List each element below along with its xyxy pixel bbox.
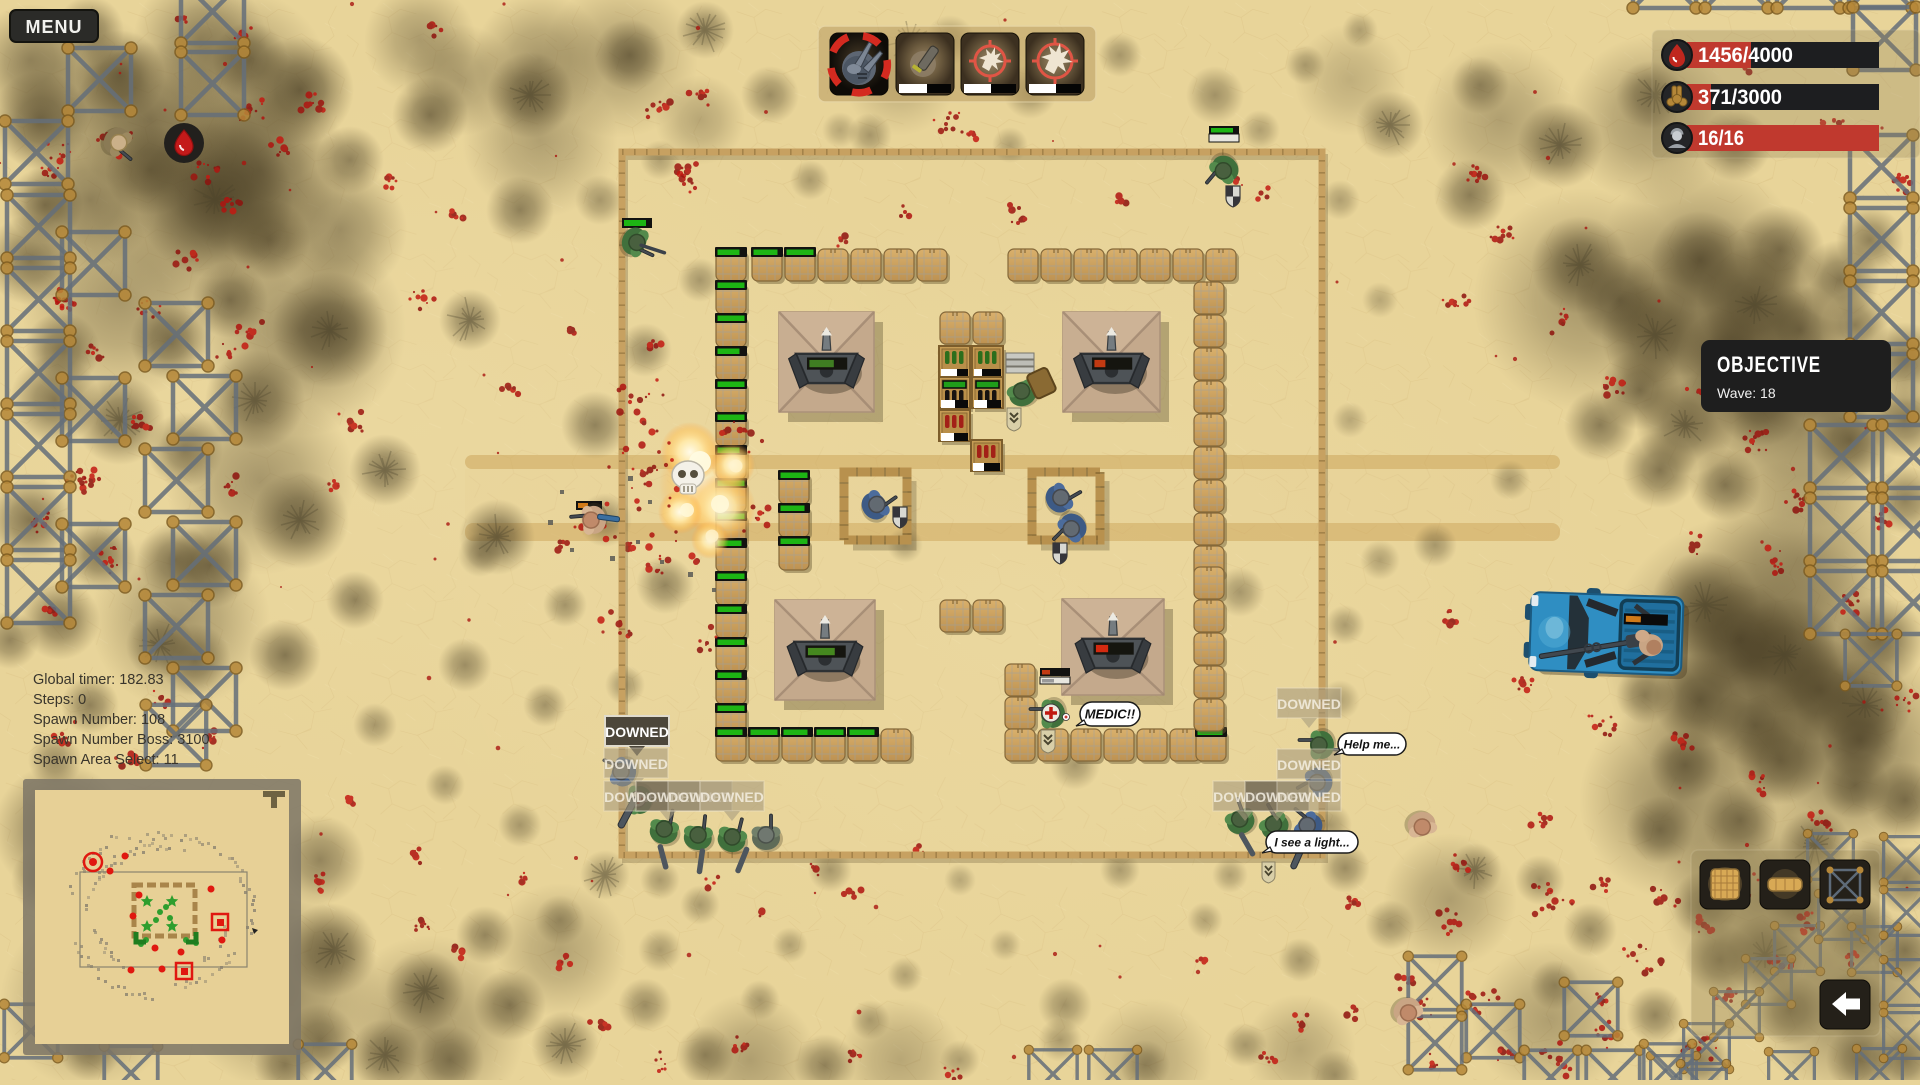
svg-text:DOWNED: DOWNED (1277, 757, 1341, 773)
svg-text:1456/4000: 1456/4000 (1698, 44, 1793, 67)
svg-text:I see a light...: I see a light... (1274, 836, 1349, 850)
svg-text:Spawn Number: 108: Spawn Number: 108 (33, 712, 165, 728)
svg-text:DOWNED: DOWNED (1277, 789, 1341, 805)
svg-text:Spawn Number Boss: 3100: Spawn Number Boss: 3100 (33, 732, 210, 748)
svg-text:Spawn Area Select: 11: Spawn Area Select: 11 (33, 752, 179, 768)
svg-text:Help me...: Help me... (1344, 738, 1401, 752)
svg-text:MEDIC!!: MEDIC!! (1085, 707, 1136, 722)
svg-text:DOWNED: DOWNED (1277, 696, 1341, 712)
svg-text:Steps: 0: Steps: 0 (33, 692, 86, 708)
svg-text:Global timer: 182.83: Global timer: 182.83 (33, 672, 164, 688)
svg-text:DOWNED: DOWNED (604, 756, 668, 772)
svg-text:MENU: MENU (26, 17, 83, 37)
svg-text:Wave: 18: Wave: 18 (1717, 385, 1776, 401)
svg-text:DOWNED: DOWNED (700, 789, 764, 805)
svg-text:OBJECTIVE: OBJECTIVE (1717, 352, 1821, 377)
svg-text:DOWNED: DOWNED (605, 724, 669, 740)
svg-text:16/16: 16/16 (1698, 127, 1744, 150)
svg-text:371/3000: 371/3000 (1698, 86, 1782, 109)
